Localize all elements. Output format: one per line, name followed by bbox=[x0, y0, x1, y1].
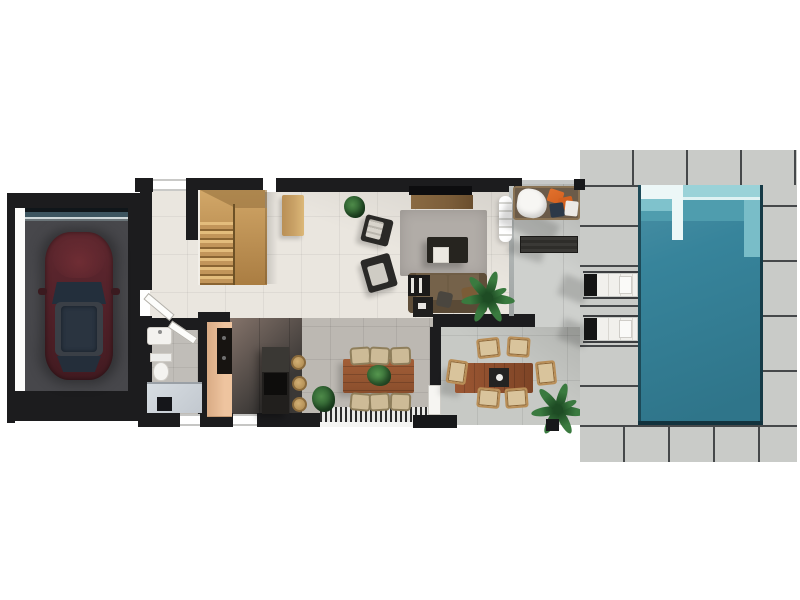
car bbox=[45, 232, 113, 380]
car-sunroof bbox=[61, 306, 97, 352]
outdoor-chair bbox=[445, 359, 468, 386]
deck-corner-marker-top bbox=[574, 179, 585, 190]
lounger-headrest bbox=[584, 274, 597, 296]
south-wall-1 bbox=[138, 413, 180, 427]
outdoor-bench bbox=[520, 236, 578, 253]
staircase bbox=[198, 190, 265, 285]
cooktop-knob bbox=[222, 356, 226, 360]
dining-chair bbox=[390, 347, 412, 366]
toilet bbox=[150, 353, 172, 381]
stairs-floor-shadow bbox=[265, 192, 278, 284]
daybed-pillow-navy bbox=[549, 202, 565, 218]
island-cooktop bbox=[264, 373, 287, 395]
side-table bbox=[413, 297, 433, 317]
deck-corner-marker-bottom bbox=[546, 419, 559, 431]
pool-edge-left bbox=[638, 185, 641, 425]
garage-east-wall bbox=[128, 193, 140, 421]
daybed-pillow-white bbox=[564, 200, 578, 216]
stairs-right-flight bbox=[235, 208, 267, 285]
car-hood bbox=[53, 238, 105, 278]
south-window-2 bbox=[233, 414, 257, 426]
floor-plan-canvas bbox=[0, 0, 800, 600]
toilet-tank bbox=[150, 353, 172, 362]
west-wall-upper bbox=[140, 178, 152, 290]
south-window-1 bbox=[180, 414, 200, 426]
bar-stool bbox=[291, 355, 306, 370]
garage-side-white-strip bbox=[15, 208, 25, 391]
bar-stool bbox=[292, 376, 307, 391]
table-centerpiece-plant bbox=[367, 365, 391, 386]
shower bbox=[147, 382, 202, 413]
shower-drain bbox=[157, 397, 172, 411]
north-wall-main bbox=[276, 178, 522, 192]
daybed-blanket bbox=[515, 187, 549, 220]
bathroom-sink bbox=[147, 327, 172, 345]
car-mirror-right bbox=[111, 288, 120, 295]
planter-box bbox=[413, 415, 457, 428]
bar-stool bbox=[292, 397, 307, 412]
entry-door-window bbox=[153, 179, 186, 191]
island-counter-top bbox=[262, 347, 289, 372]
sink-faucet bbox=[158, 330, 162, 334]
tv-console bbox=[411, 195, 473, 209]
pergola-beam bbox=[522, 180, 580, 184]
console-table bbox=[282, 195, 304, 236]
sun-lounger-1 bbox=[583, 271, 638, 299]
outdoor-chair bbox=[476, 387, 501, 409]
outdoor-chair bbox=[506, 336, 530, 358]
pool-deck-right-band bbox=[763, 185, 797, 425]
pool-step-shallow-patch bbox=[638, 199, 672, 211]
pool-step-vertical bbox=[672, 185, 683, 240]
kitchen-island bbox=[262, 347, 289, 414]
ottoman-cube bbox=[433, 247, 449, 263]
dining-chair bbox=[369, 392, 391, 411]
armchair-1-cushion bbox=[365, 219, 384, 240]
south-wall-3 bbox=[257, 413, 320, 427]
garage-left-wall bbox=[7, 193, 15, 423]
garage-door bbox=[25, 208, 128, 221]
garage-top-wall bbox=[7, 193, 140, 208]
pool-deck-bottom-band bbox=[580, 425, 797, 462]
palm-core bbox=[484, 293, 493, 302]
shelf-unit bbox=[408, 275, 430, 296]
toilet-bowl bbox=[153, 362, 169, 381]
stairwell-left-wall bbox=[186, 190, 198, 240]
potted-plant bbox=[344, 196, 365, 218]
dining-chair bbox=[369, 346, 391, 365]
lounger-pillow bbox=[619, 320, 632, 338]
sofa-pillow-dark bbox=[436, 291, 454, 309]
tv-screen bbox=[409, 186, 472, 195]
car-mirror-left bbox=[38, 288, 47, 295]
pool-edge-bottom bbox=[638, 421, 763, 425]
side-table-tray bbox=[418, 303, 426, 309]
table-bowl bbox=[496, 374, 503, 381]
stairs-center-rail bbox=[233, 204, 235, 285]
pool-deck-top-band bbox=[580, 150, 797, 185]
indoor-palm-plant bbox=[458, 270, 518, 324]
stairs-left-flight-treads bbox=[200, 222, 233, 285]
lounger-pillow bbox=[619, 276, 632, 294]
daybed bbox=[513, 186, 580, 220]
dining-chair bbox=[390, 393, 412, 412]
garage-bottom-wall bbox=[7, 391, 140, 421]
pool-deck-left-band bbox=[580, 185, 638, 425]
outdoor-chair bbox=[476, 337, 501, 359]
car-windshield bbox=[52, 282, 106, 304]
swimming-pool bbox=[638, 185, 763, 425]
palm-core bbox=[554, 405, 563, 414]
sun-lounger-2 bbox=[583, 315, 638, 343]
armchair-2-cushion bbox=[367, 262, 389, 286]
pool-edge-right bbox=[760, 185, 763, 425]
lounger-headrest bbox=[584, 318, 597, 340]
kitchen-cooktop-counter bbox=[217, 328, 232, 374]
shelf-slots bbox=[411, 278, 427, 293]
kitchen-corner-plant bbox=[312, 386, 335, 412]
cooktop-knob bbox=[222, 336, 226, 340]
dining-divider-wall bbox=[430, 327, 441, 387]
car-rear-window bbox=[57, 356, 101, 372]
